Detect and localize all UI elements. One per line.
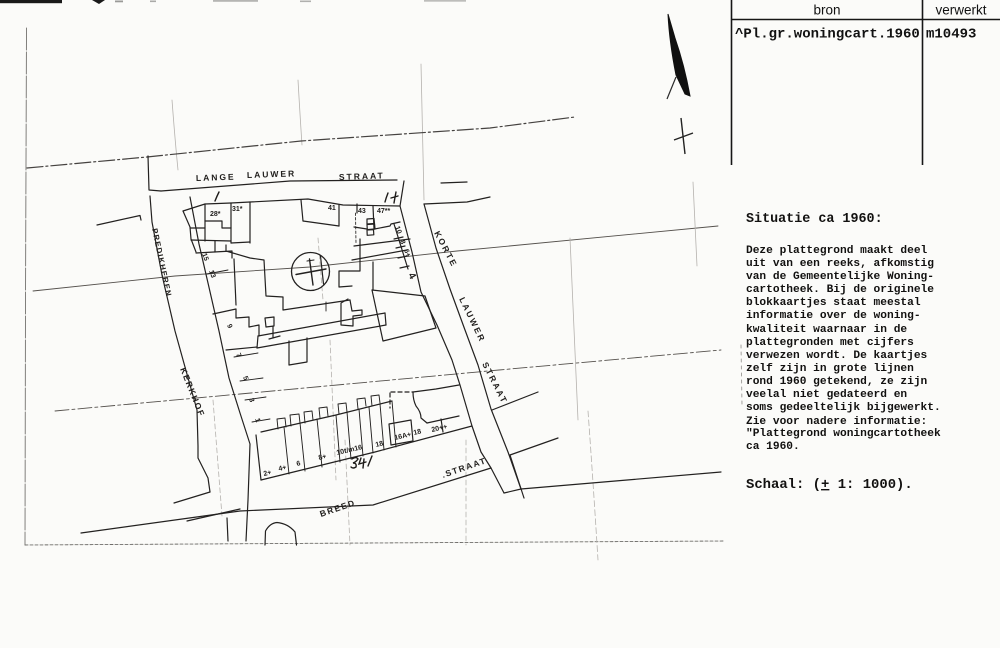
svg-text:informatie over de woning-: informatie over de woning- [746,310,921,322]
svg-text:blokkaartjes staat meestal: blokkaartjes staat meestal [746,297,921,309]
svg-text:bron: bron [813,3,840,18]
svg-text:43: 43 [358,208,366,215]
svg-text:m10493: m10493 [926,27,976,43]
svg-text:rond 1960 getekend, ze zijn: rond 1960 getekend, ze zijn [746,376,928,388]
svg-text:LAUWER: LAUWER [247,168,297,180]
svg-text:zelf zijn in grote lijnen: zelf zijn in grote lijnen [746,363,914,375]
svg-text:cartotheek. Bij de originele: cartotheek. Bij de originele [746,284,934,296]
svg-text:31*: 31* [232,206,243,213]
svg-text:^Pl.gr.woningcart.1960: ^Pl.gr.woningcart.1960 [735,27,920,43]
svg-text:28*: 28* [210,211,221,218]
svg-text:ca 1960.: ca 1960. [746,441,800,453]
svg-text:verwezen wordt. De kaartjes: verwezen wordt. De kaartjes [746,350,928,362]
svg-text:47**: 47** [377,208,391,215]
svg-text:"Plattegrond woningcartotheek: "Plattegrond woningcartotheek [746,428,941,440]
svg-text:verwerkt: verwerkt [935,3,986,18]
svg-text:veelal niet gedateerd en: veelal niet gedateerd en [746,389,907,401]
svg-text:Deze plattegrond maakt deel: Deze plattegrond maakt deel [746,245,928,257]
svg-text:plattegronden met cijfers: plattegronden met cijfers [746,337,914,349]
svg-text:van de Gemeentelijke Woning-: van de Gemeentelijke Woning- [746,271,934,283]
svg-text:LANGE: LANGE [196,172,236,183]
svg-text:uit van een reeks, afkomstig: uit van een reeks, afkomstig [746,258,934,270]
svg-text:Situatie ca 1960:: Situatie ca 1960: [746,212,883,227]
svg-text:STRAAT: STRAAT [339,170,385,182]
svg-text:41: 41 [328,205,336,212]
svg-text:soms gedeeltelijk bijgewerkt.: soms gedeeltelijk bijgewerkt. [746,402,941,414]
svg-text:kwaliteit waarnaar in de: kwaliteit waarnaar in de [746,324,907,336]
svg-text:Zie voor nadere informatie:: Zie voor nadere informatie: [746,416,927,428]
svg-text:Schaal: (+ 1: 1000).: Schaal: (+ 1: 1000). [746,477,913,493]
